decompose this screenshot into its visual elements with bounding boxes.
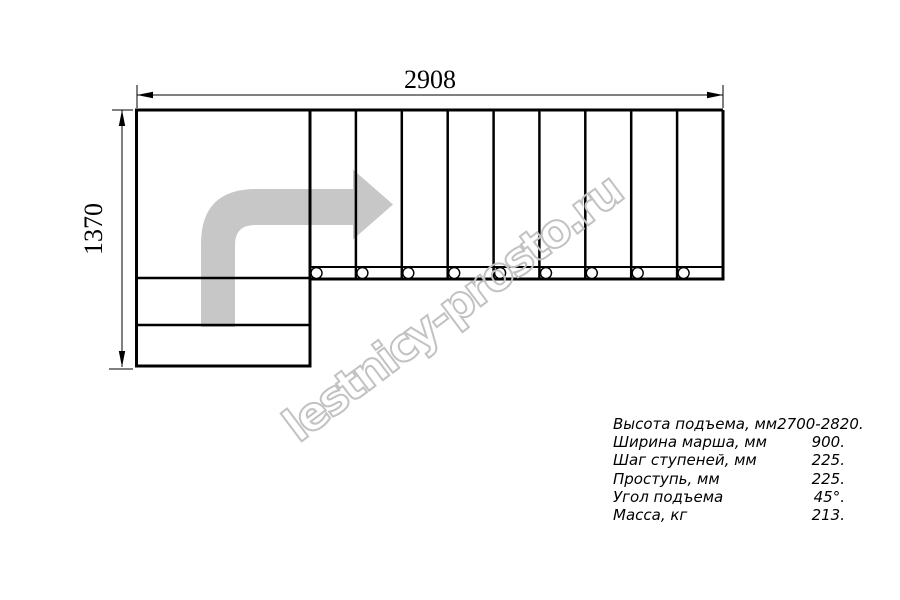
- dim-arrow-up: [119, 110, 125, 126]
- spec-value: 225.: [812, 451, 845, 469]
- spec-label: Шаг ступеней, мм: [613, 451, 757, 469]
- width-dimension-label: 2908: [404, 65, 456, 94]
- staircase-drawing-canvas: 2908 1370 lestnicy-prosto.ru Высота подъ…: [0, 0, 900, 600]
- specs-table: Высота подъема, мм 2700-2820. Ширина мар…: [613, 415, 845, 524]
- spec-value: 225.: [812, 470, 845, 488]
- dimension-height: 1370: [79, 110, 133, 369]
- dim-arrow-right: [707, 92, 723, 98]
- spec-label: Масса, кг: [613, 506, 687, 524]
- spec-value: 45°.: [814, 488, 845, 506]
- dim-arrow-down: [119, 351, 125, 367]
- direction-arrow-icon: [201, 170, 393, 328]
- dimension-width: 2908: [137, 65, 723, 108]
- spec-value: 213.: [812, 506, 845, 524]
- spec-value: 900.: [812, 433, 845, 451]
- height-dimension-label: 1370: [79, 203, 108, 255]
- step-dividers: [356, 110, 677, 279]
- spec-label: Угол подъема: [613, 488, 723, 506]
- dim-arrow-left: [137, 92, 153, 98]
- spec-label: Проступь, мм: [613, 470, 720, 488]
- spec-label: Ширина марша, мм: [613, 433, 767, 451]
- spec-row-height: Высота подъема, мм 2700-2820.: [613, 415, 845, 433]
- spec-label: Высота подъема, мм: [613, 415, 777, 433]
- spec-value: 2700-2820.: [777, 415, 864, 433]
- spec-row-angle: Угол подъема 45°.: [613, 488, 845, 506]
- spec-row-tread: Проступь, мм 225.: [613, 470, 845, 488]
- spec-row-mass: Масса, кг 213.: [613, 506, 845, 524]
- spec-row-march-width: Ширина марша, мм 900.: [613, 433, 845, 451]
- spec-row-step-pitch: Шаг ступеней, мм 225.: [613, 451, 845, 469]
